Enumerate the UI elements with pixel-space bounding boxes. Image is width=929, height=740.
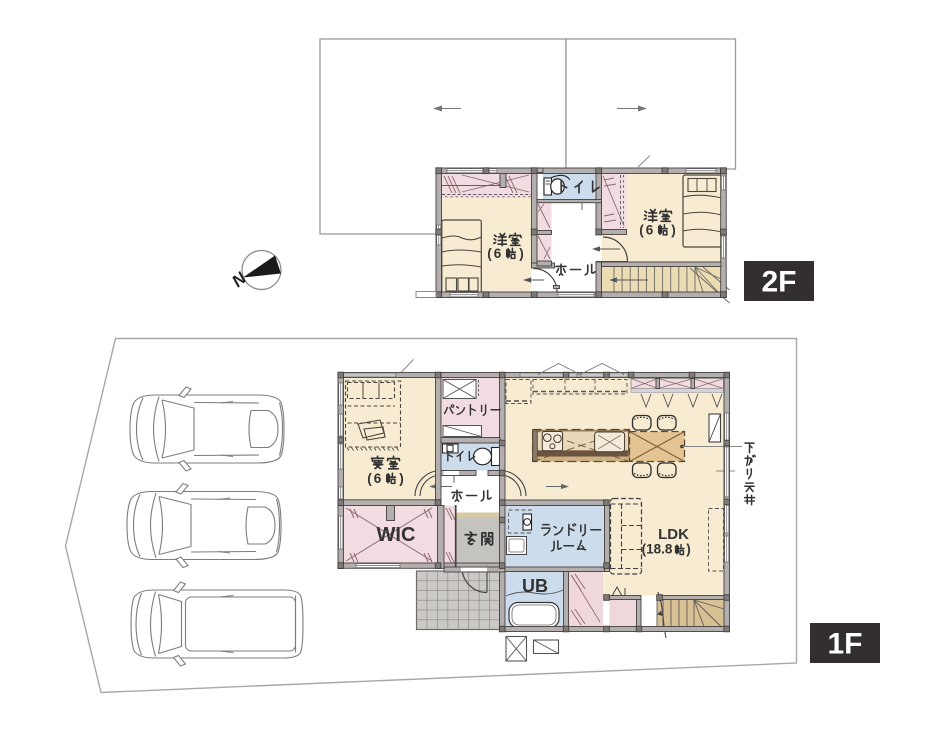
- svg-text:WIC: WIC: [377, 524, 416, 546]
- svg-text:LDK: LDK: [658, 526, 689, 543]
- svg-text:(: (: [367, 471, 372, 486]
- svg-text:): ): [671, 223, 676, 238]
- svg-text:6: 6: [646, 223, 654, 238]
- svg-text:6: 6: [374, 471, 382, 486]
- svg-text:(: (: [487, 246, 492, 261]
- svg-text:1F: 1F: [827, 628, 862, 661]
- svg-text:): ): [519, 246, 524, 261]
- svg-text:UB: UB: [522, 576, 548, 596]
- svg-text:): ): [686, 542, 691, 557]
- svg-text:(: (: [639, 223, 644, 238]
- svg-text:(18.8: (18.8: [642, 542, 673, 557]
- svg-text:): ): [399, 471, 404, 486]
- svg-text:2F: 2F: [761, 266, 796, 299]
- svg-text:6: 6: [494, 246, 502, 261]
